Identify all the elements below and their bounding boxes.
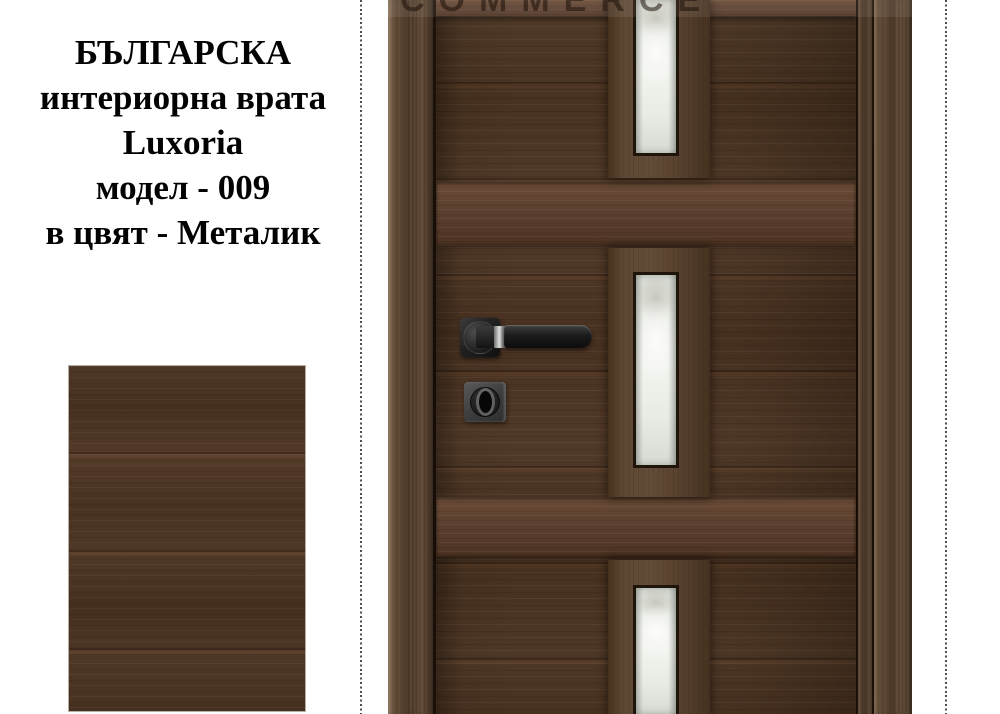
keyhole-escutcheon xyxy=(464,382,506,422)
door-frame-left xyxy=(388,0,433,714)
door-frame-right xyxy=(874,0,912,714)
color-sample-swatch xyxy=(68,365,306,712)
frosted-glass-top xyxy=(633,0,679,156)
title-line-model: модел - 009 xyxy=(6,165,360,210)
crop-guide-right xyxy=(945,0,947,714)
product-image: БЪЛГАРСКА интериорна врата Luxoria модел… xyxy=(0,0,1000,714)
door-photo: COMMERCE xyxy=(388,0,912,714)
product-title: БЪЛГАРСКА интериорна врата Luxoria модел… xyxy=(6,30,360,255)
watermark-text: COMMERCE xyxy=(400,0,714,17)
crop-guide-left xyxy=(360,0,362,714)
door-handle-boss xyxy=(476,326,496,348)
frosted-glass-middle xyxy=(633,272,679,468)
watermark-band: COMMERCE xyxy=(388,0,912,17)
glass-panel-bottom xyxy=(608,560,710,714)
door-rail-middle-2 xyxy=(436,497,856,557)
door-slab xyxy=(436,0,856,714)
keyhole-slot xyxy=(479,391,492,413)
door-rail-middle-1 xyxy=(436,182,856,246)
title-line-origin: БЪЛГАРСКА xyxy=(6,30,360,75)
frosted-glass-bottom xyxy=(633,585,679,714)
door-handle-lever xyxy=(504,325,592,348)
title-line-brand: Luxoria xyxy=(6,120,360,165)
glass-panel-top xyxy=(608,0,710,178)
door-edge-strip xyxy=(858,0,872,714)
glass-panel-middle xyxy=(608,248,710,497)
title-line-color: в цвят - Металик xyxy=(6,210,360,255)
title-line-type: интериорна врата xyxy=(6,75,360,120)
